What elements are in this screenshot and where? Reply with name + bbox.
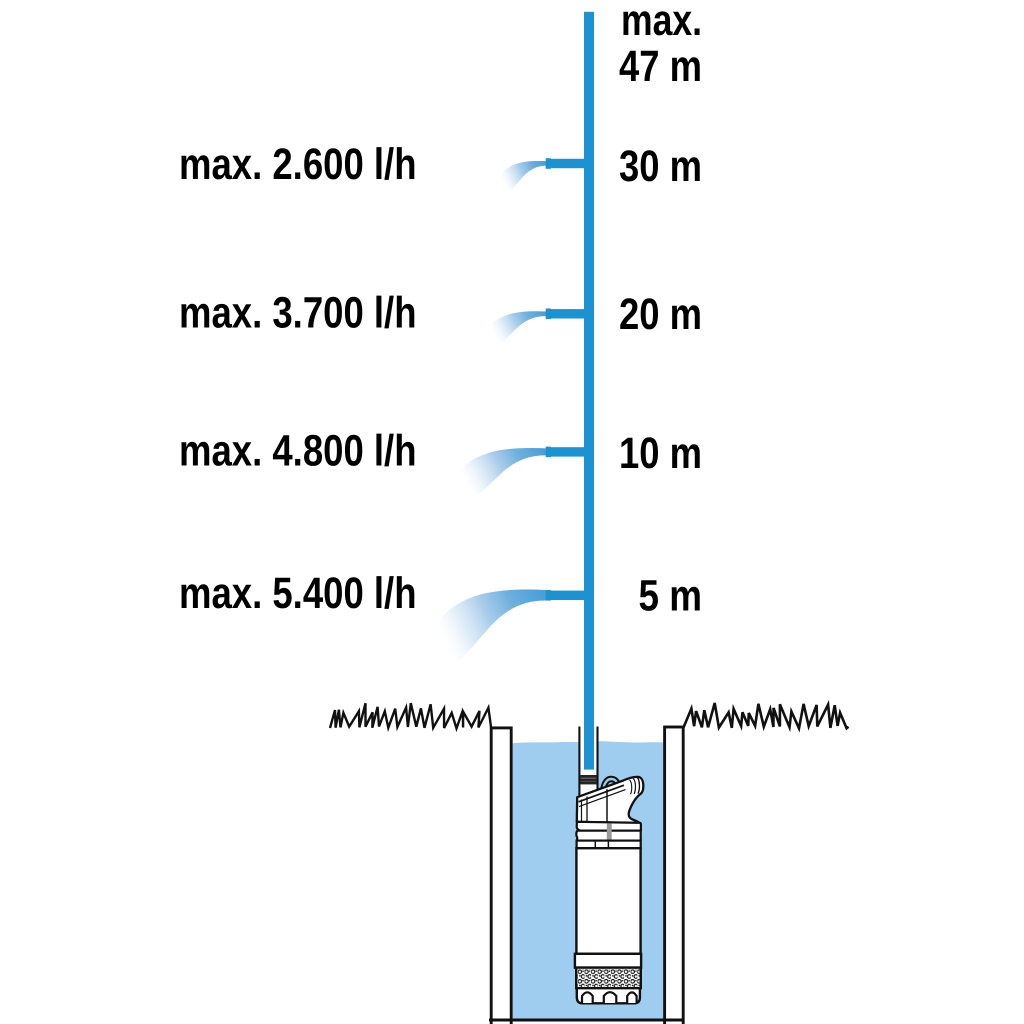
svg-text:max. 4.800 l/h: max. 4.800 l/h xyxy=(179,427,417,476)
svg-text:max. 3.700 l/h: max. 3.700 l/h xyxy=(179,288,417,337)
svg-text:max. 5.400 l/h: max. 5.400 l/h xyxy=(179,569,417,618)
svg-text:30 m: 30 m xyxy=(619,142,702,191)
svg-text:47 m: 47 m xyxy=(619,42,702,91)
svg-text:max. 2.600 l/h: max. 2.600 l/h xyxy=(179,140,417,189)
svg-text:max.: max. xyxy=(621,0,702,45)
svg-text:10 m: 10 m xyxy=(619,429,702,478)
svg-text:5 m: 5 m xyxy=(639,572,703,621)
svg-text:20 m: 20 m xyxy=(619,290,702,339)
